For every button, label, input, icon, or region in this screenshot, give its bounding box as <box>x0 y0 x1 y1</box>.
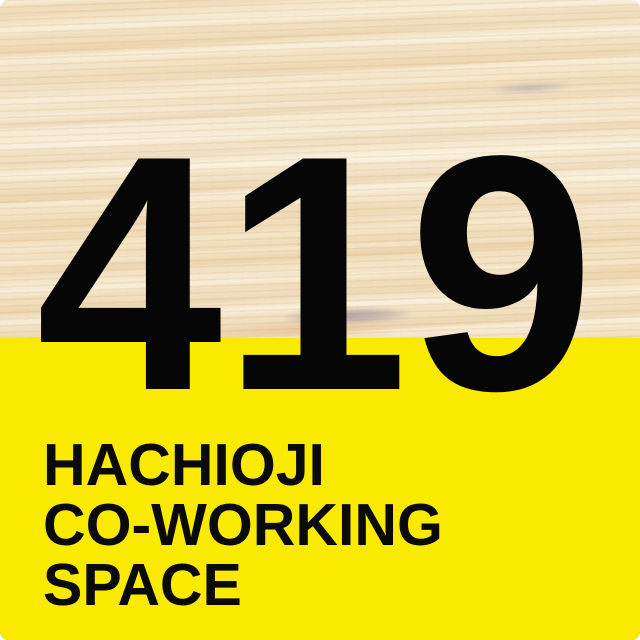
logo-title-line-1: HACHIOJI <box>43 435 443 495</box>
logo-title-line-3: SPACE <box>43 555 443 615</box>
logo-number: 419 <box>36 106 595 441</box>
logo-title: HACHIOJI CO-WORKING SPACE <box>43 435 443 615</box>
logo-title-line-2: CO-WORKING <box>43 495 443 555</box>
logo-card: 419 HACHIOJI CO-WORKING SPACE <box>0 0 640 640</box>
